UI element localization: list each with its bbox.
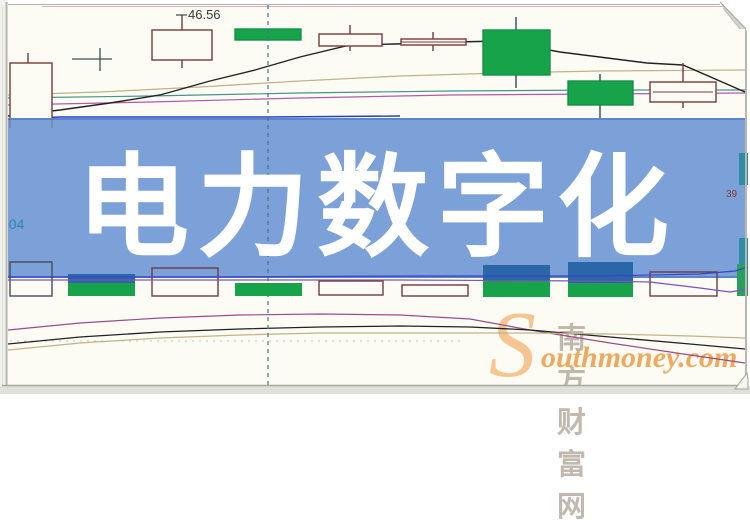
page-curl-bottom-right xyxy=(735,373,748,389)
page-curl-top-right xyxy=(718,0,750,34)
stock-chart-screenshot: { "banner": { "title": "电力数字化", "bg_colo… xyxy=(0,0,750,400)
page-frame xyxy=(0,0,750,400)
bottom-bezel xyxy=(0,386,750,394)
